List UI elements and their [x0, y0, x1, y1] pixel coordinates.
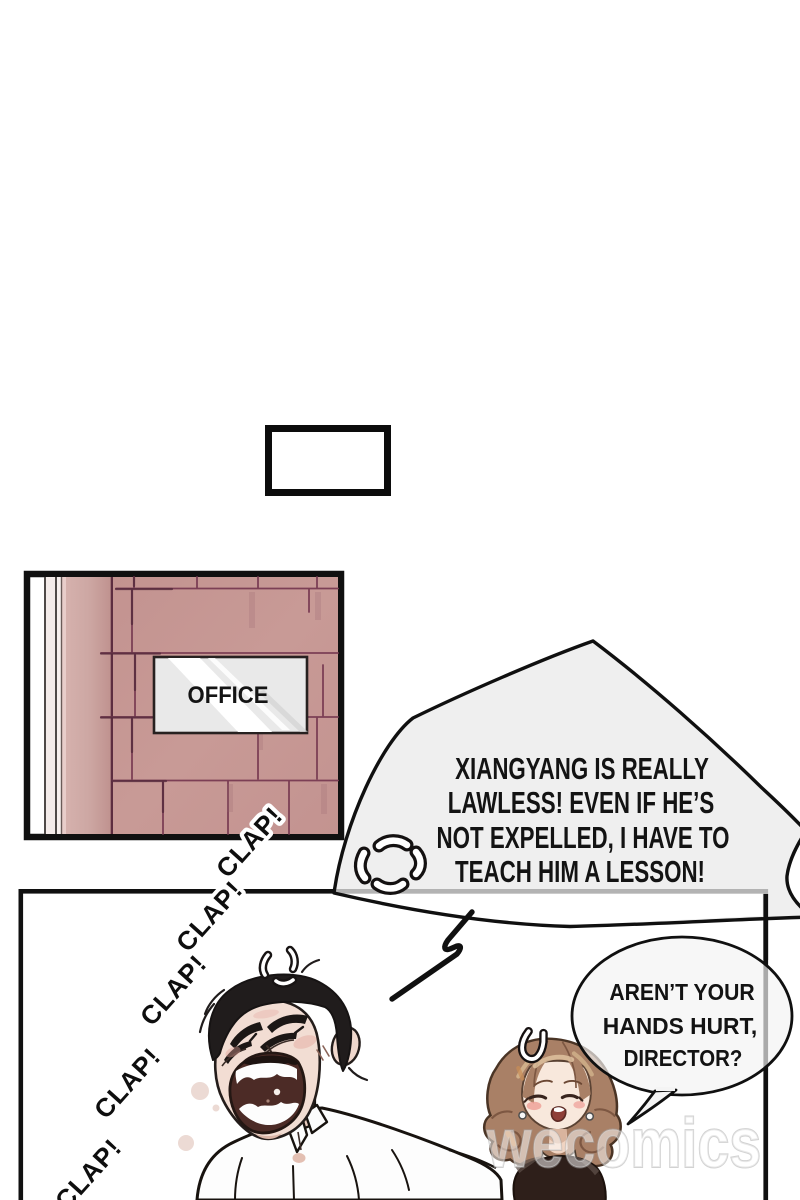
svg-text:wecomics: wecomics [486, 1104, 761, 1183]
svg-text:AREN’T YOUR: AREN’T YOUR [609, 979, 754, 1005]
svg-text:LAWLESS! EVEN IF HE’S: LAWLESS! EVEN IF HE’S [448, 785, 715, 819]
svg-text:OFFICE: OFFICE [188, 681, 269, 708]
svg-text:NOT EXPELLED, I HAVE TO: NOT EXPELLED, I HAVE TO [437, 820, 730, 854]
svg-text:XIANGYANG IS REALLY: XIANGYANG IS REALLY [455, 751, 709, 785]
svg-text:DIRECTOR?: DIRECTOR? [624, 1045, 743, 1072]
svg-text:TEACH HIM A LESSON!: TEACH HIM A LESSON! [455, 854, 705, 888]
svg-text:HANDS HURT,: HANDS HURT, [603, 1013, 757, 1039]
